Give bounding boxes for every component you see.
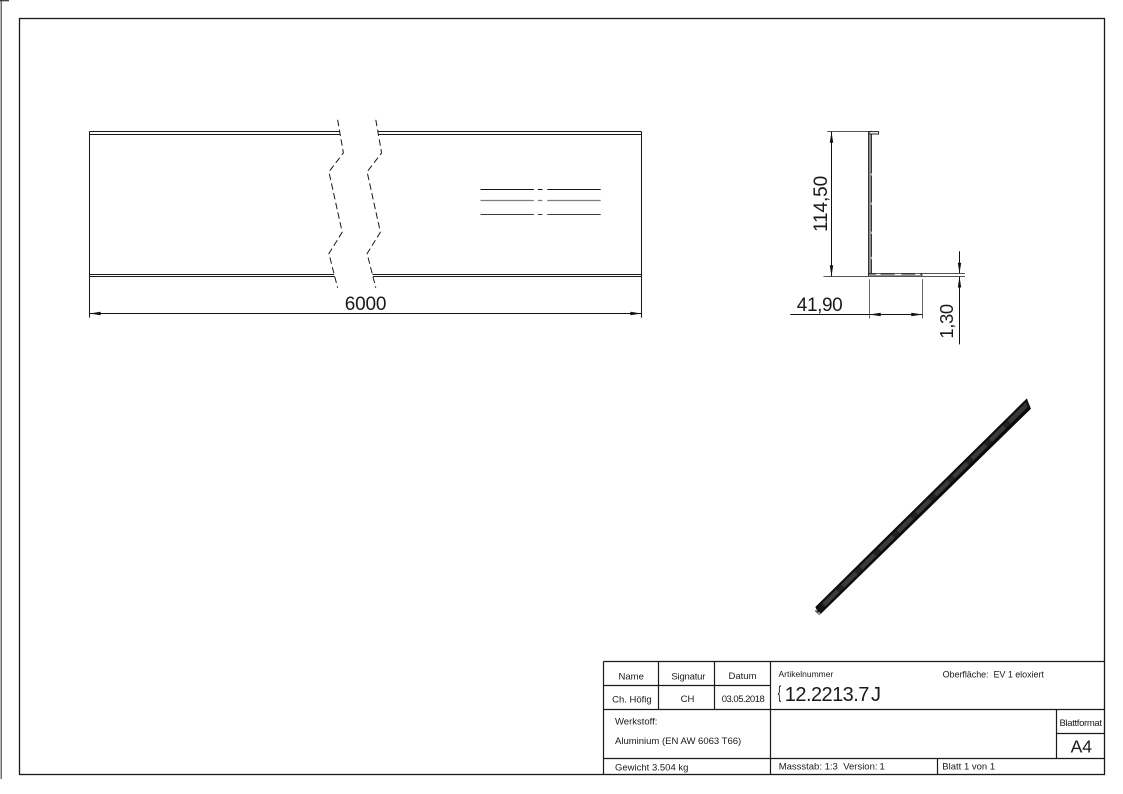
svg-text:Datum: Datum — [729, 671, 757, 682]
svg-text:Blattformat: Blattformat — [1060, 718, 1103, 729]
svg-text:{: { — [778, 684, 782, 703]
svg-text:Blatt 1 von 1: Blatt 1 von 1 — [942, 762, 995, 773]
svg-text:1,30: 1,30 — [936, 304, 957, 339]
svg-text:Version:: Version: — [843, 762, 877, 773]
svg-text:Massstab: 1:3: Massstab: 1:3 — [779, 762, 838, 773]
svg-text:41,90: 41,90 — [797, 295, 843, 316]
svg-text:Ch. Höfig: Ch. Höfig — [612, 694, 652, 705]
svg-text:Artikelnummer: Artikelnummer — [779, 669, 834, 679]
svg-text:J: J — [871, 684, 881, 706]
svg-text:Aluminium (EN AW 6063 T66): Aluminium (EN AW 6063 T66) — [615, 736, 741, 747]
svg-text:CH: CH — [681, 694, 695, 705]
svg-text:6000: 6000 — [345, 294, 386, 315]
svg-text:A4: A4 — [1071, 737, 1093, 757]
svg-text:Werkstoff:: Werkstoff: — [615, 717, 657, 728]
svg-text:Gewicht 3.504 kg: Gewicht 3.504 kg — [615, 763, 688, 774]
svg-text:12.2213.7: 12.2213.7 — [785, 684, 869, 706]
svg-text:03.05.2018: 03.05.2018 — [722, 694, 765, 705]
svg-text:Name: Name — [619, 672, 644, 683]
svg-text:Oberfläche: EV 1 eloxiert: Oberfläche: EV 1 eloxiert — [943, 670, 1045, 680]
svg-text:114,50: 114,50 — [811, 176, 832, 232]
svg-text:1: 1 — [880, 762, 885, 773]
svg-text:Signatur: Signatur — [671, 672, 705, 683]
